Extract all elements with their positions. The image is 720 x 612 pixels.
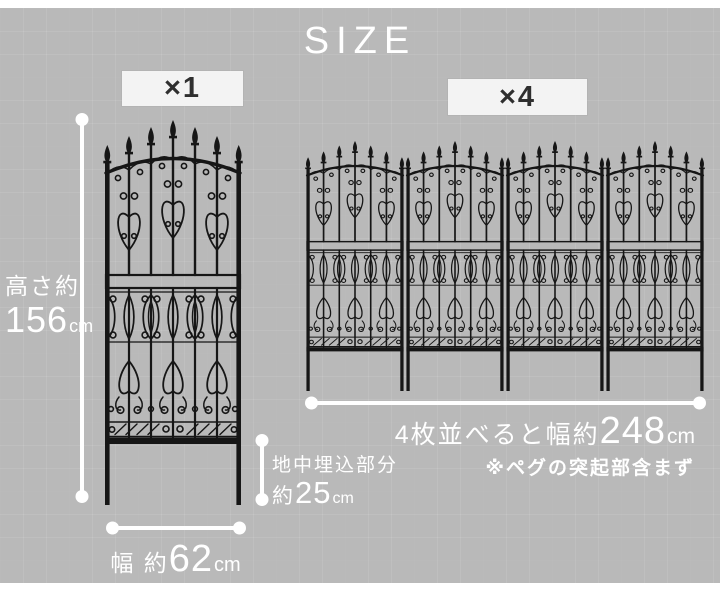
fence-panel-1 [305, 141, 405, 391]
dimension-endpoint-dot [106, 522, 119, 535]
dimension-endpoint-dot [256, 493, 269, 506]
combined-width-unit: cm [667, 425, 695, 449]
combined-width-prefix: 4枚並べると幅約 [395, 421, 600, 449]
buried-depth-dimension-line [260, 439, 264, 501]
buried-value: 25 [295, 476, 331, 511]
multi-count-badge: ×4 [448, 79, 587, 115]
dimension-endpoint-dot [256, 434, 269, 447]
multi-count-label: ×4 [499, 81, 536, 114]
size-diagram: SIZE ×1 高さ約 156 cm 地中埋込部分 約 25 [0, 0, 720, 612]
width-unit: cm [214, 554, 241, 576]
height-label: 高さ約 [5, 274, 93, 300]
buried-prefix: 約 [272, 485, 293, 509]
width-label: 幅 約 [110, 551, 168, 577]
fence-panel-3 [505, 141, 605, 391]
single-fence-illustration [103, 120, 243, 505]
dimension-endpoint-dot [76, 113, 89, 126]
width-value: 62 [169, 538, 213, 581]
height-dimension-label: 高さ約 156 cm [5, 274, 93, 340]
width-dimension-line [108, 526, 244, 530]
diagram-background: SIZE ×1 高さ約 156 cm 地中埋込部分 約 25 [0, 8, 720, 583]
height-value: 156 [5, 300, 68, 340]
single-count-label: ×1 [164, 72, 201, 105]
buried-label: 地中埋込部分 [272, 455, 398, 476]
buried-unit: cm [332, 490, 353, 508]
dimension-endpoint-dot [693, 397, 706, 410]
dimension-endpoint-dot [305, 397, 318, 410]
width-dimension-label: 幅 約 62 cm [93, 538, 258, 581]
peg-note: ※ペグの突起部含まず [395, 458, 695, 479]
buried-depth-label: 地中埋込部分 約 25 cm [272, 455, 398, 511]
single-count-badge: ×1 [122, 71, 243, 106]
fence-panel-4 [605, 141, 705, 391]
fence-panel-2 [405, 141, 505, 391]
height-unit: cm [69, 316, 93, 336]
dimension-endpoint-dot [76, 490, 89, 503]
page-title: SIZE [0, 20, 720, 63]
combined-width-dimension-line [307, 401, 704, 405]
combined-width-value: 248 [600, 410, 666, 453]
combined-width-label: 4枚並べると幅約 248 cm ※ペグの突起部含まず [395, 410, 695, 479]
dimension-endpoint-dot [233, 522, 246, 535]
